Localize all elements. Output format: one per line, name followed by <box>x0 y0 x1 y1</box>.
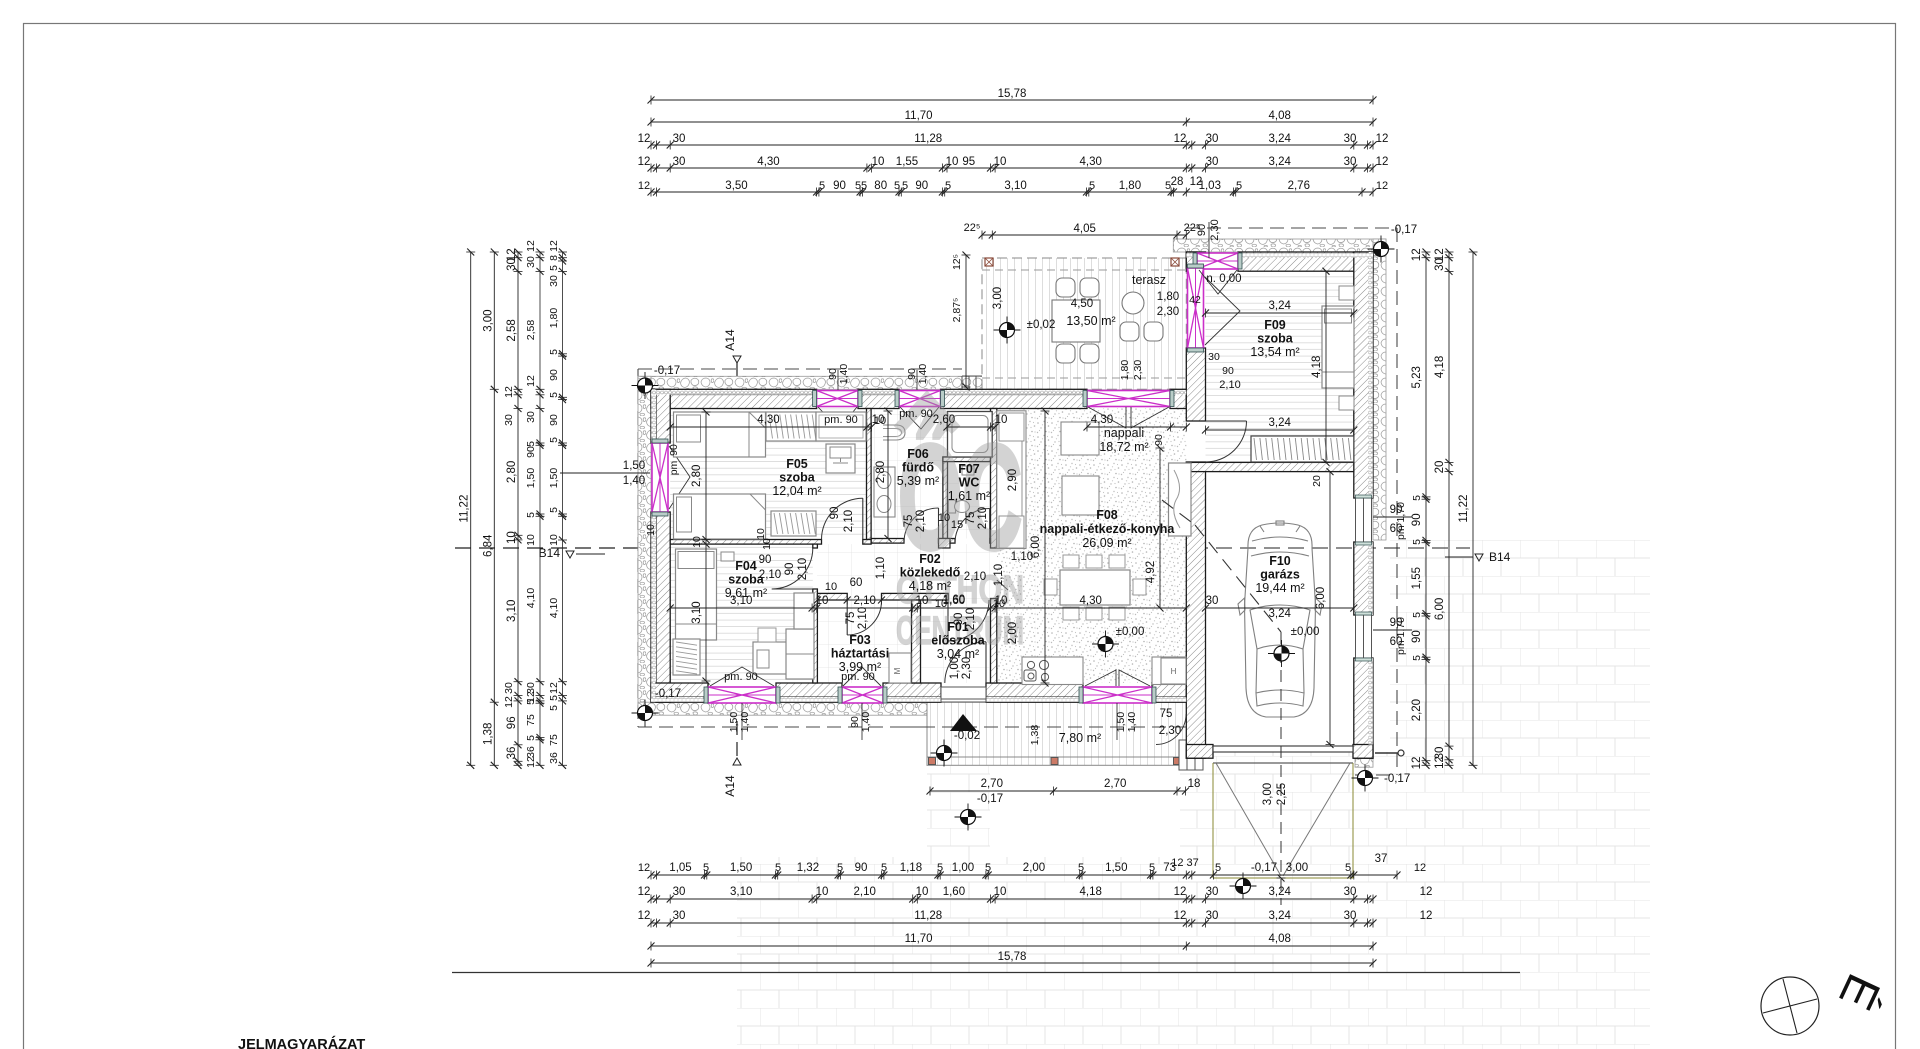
svg-text:2,80: 2,80 <box>506 461 518 483</box>
svg-text:2,70: 2,70 <box>1104 778 1126 790</box>
svg-text:13,54 m²: 13,54 m² <box>1250 345 1299 359</box>
svg-text:30: 30 <box>1344 156 1357 168</box>
svg-text:5: 5 <box>548 392 560 398</box>
svg-text:n. 0,00: n. 0,00 <box>1206 273 1241 285</box>
svg-text:2,00: 2,00 <box>1007 622 1019 644</box>
svg-text:3,24: 3,24 <box>1269 300 1292 312</box>
svg-text:2,87⁵: 2,87⁵ <box>951 298 963 323</box>
svg-text:5: 5 <box>548 265 560 271</box>
svg-text:30: 30 <box>525 411 537 423</box>
svg-text:3,24: 3,24 <box>1269 910 1292 922</box>
svg-text:12: 12 <box>1414 862 1426 874</box>
svg-text:1,00: 1,00 <box>952 862 974 874</box>
svg-text:96: 96 <box>506 716 518 729</box>
svg-text:5: 5 <box>1411 495 1423 501</box>
svg-text:5: 5 <box>945 180 951 192</box>
svg-text:12: 12 <box>1420 886 1433 898</box>
svg-text:F07: F07 <box>958 462 980 476</box>
svg-text:1,50: 1,50 <box>525 468 537 489</box>
svg-text:2,30: 2,30 <box>1132 360 1144 381</box>
svg-text:JELMAGYARÁZAT: JELMAGYARÁZAT <box>238 1036 365 1049</box>
svg-text:3,24: 3,24 <box>1269 156 1292 168</box>
svg-text:28: 28 <box>1171 176 1184 188</box>
svg-text:F10: F10 <box>1269 554 1291 568</box>
svg-text:10: 10 <box>916 886 929 898</box>
svg-text:5: 5 <box>894 180 900 192</box>
svg-text:B14: B14 <box>1489 550 1511 564</box>
svg-text:háztartási: háztartási <box>831 647 889 661</box>
svg-text:A14: A14 <box>723 329 737 351</box>
svg-text:5: 5 <box>1078 862 1084 874</box>
svg-text:5: 5 <box>525 699 537 705</box>
svg-text:10: 10 <box>525 534 537 546</box>
svg-text:-0,17: -0,17 <box>1391 224 1417 236</box>
svg-text:4,08: 4,08 <box>1269 933 1291 945</box>
svg-text:12: 12 <box>525 240 537 252</box>
svg-text:10: 10 <box>916 595 929 607</box>
svg-text:4,18: 4,18 <box>1080 886 1102 898</box>
svg-text:±0,00: ±0,00 <box>1291 626 1320 638</box>
svg-text:12: 12 <box>1174 886 1187 898</box>
svg-text:12 37: 12 37 <box>1171 857 1199 869</box>
svg-text:6,84: 6,84 <box>482 534 494 557</box>
svg-text:10: 10 <box>994 156 1007 168</box>
svg-text:22⁵: 22⁵ <box>964 222 981 234</box>
svg-text:1,03: 1,03 <box>1199 180 1221 192</box>
svg-text:12: 12 <box>1434 756 1446 769</box>
svg-text:11,28: 11,28 <box>914 133 942 145</box>
svg-text:4,18: 4,18 <box>1434 356 1446 378</box>
svg-text:12: 12 <box>1376 133 1389 145</box>
svg-text:5: 5 <box>881 862 887 874</box>
svg-text:1,10: 1,10 <box>1011 551 1033 563</box>
svg-text:F09: F09 <box>1264 318 1286 332</box>
svg-text:5: 5 <box>861 180 867 192</box>
svg-text:75: 75 <box>548 734 560 746</box>
svg-text:4,30: 4,30 <box>1091 414 1113 426</box>
svg-text:4,10: 4,10 <box>525 588 537 609</box>
svg-text:12: 12 <box>1174 910 1187 922</box>
svg-text:-0,17: -0,17 <box>654 365 680 377</box>
svg-text:90: 90 <box>1411 513 1423 526</box>
svg-text:11,28: 11,28 <box>914 910 942 922</box>
svg-text:2,10: 2,10 <box>965 608 977 630</box>
svg-text:3,00: 3,00 <box>992 287 1004 309</box>
svg-text:12: 12 <box>1376 180 1388 192</box>
svg-text:12: 12 <box>638 910 651 922</box>
svg-text:4,18 m²: 4,18 m² <box>909 579 951 593</box>
svg-text:WC: WC <box>959 476 980 490</box>
svg-text:20: 20 <box>1311 475 1323 487</box>
svg-text:4,18: 4,18 <box>1311 356 1323 378</box>
svg-text:2,30: 2,30 <box>961 657 973 679</box>
svg-text:garázs: garázs <box>1260 568 1300 582</box>
svg-text:5: 5 <box>837 862 843 874</box>
svg-text:12: 12 <box>638 886 651 898</box>
svg-text:18,72 m²: 18,72 m² <box>1099 440 1148 454</box>
svg-text:95: 95 <box>962 156 975 168</box>
svg-text:F02: F02 <box>919 552 941 566</box>
svg-text:26,09 m²: 26,09 m² <box>1082 536 1131 550</box>
svg-text:4,10: 4,10 <box>548 598 560 619</box>
svg-text:nappali-étkező-konyha: nappali-étkező-konyha <box>1040 522 1176 536</box>
svg-text:90: 90 <box>784 563 796 576</box>
svg-text:12: 12 <box>638 133 651 145</box>
svg-text:12,04 m²: 12,04 m² <box>772 484 821 498</box>
svg-text:30: 30 <box>1344 886 1357 898</box>
svg-text:10: 10 <box>938 512 950 524</box>
svg-text:5: 5 <box>1411 539 1423 545</box>
svg-text:1,40: 1,40 <box>623 475 645 487</box>
svg-text:5: 5 <box>1215 862 1221 874</box>
svg-text:12: 12 <box>1376 156 1389 168</box>
svg-text:90: 90 <box>548 414 560 426</box>
svg-text:3,00: 3,00 <box>482 309 494 331</box>
svg-text:5: 5 <box>775 862 781 874</box>
svg-text:2,10: 2,10 <box>854 886 876 898</box>
svg-text:75: 75 <box>1160 708 1173 720</box>
svg-text:10: 10 <box>993 598 1005 610</box>
svg-text:F04: F04 <box>735 559 757 573</box>
svg-text:42: 42 <box>1189 294 1201 306</box>
svg-text:5: 5 <box>1149 862 1155 874</box>
svg-text:5: 5 <box>548 437 560 443</box>
svg-text:3,10: 3,10 <box>730 595 752 607</box>
svg-text:-0,17: -0,17 <box>1251 862 1277 874</box>
svg-text:75: 75 <box>525 714 537 726</box>
svg-text:2,10: 2,10 <box>854 595 876 607</box>
svg-text:3,10: 3,10 <box>1004 180 1026 192</box>
svg-text:5: 5 <box>525 735 537 741</box>
svg-text:10: 10 <box>816 886 829 898</box>
svg-text:5,23: 5,23 <box>1411 366 1423 388</box>
svg-text:36: 36 <box>506 747 518 760</box>
svg-text:pm 1,70: pm 1,70 <box>1395 502 1407 540</box>
svg-text:12: 12 <box>503 386 515 398</box>
svg-text:3,50: 3,50 <box>725 180 747 192</box>
svg-text:8: 8 <box>548 255 560 261</box>
svg-text:A14: A14 <box>723 775 737 797</box>
svg-text:1,55: 1,55 <box>1411 567 1423 589</box>
svg-text:5: 5 <box>1165 180 1171 192</box>
svg-text:36: 36 <box>548 752 560 764</box>
svg-text:1,50: 1,50 <box>1105 862 1127 874</box>
svg-text:90: 90 <box>548 369 560 381</box>
svg-text:2,80: 2,80 <box>875 461 887 483</box>
svg-text:12: 12 <box>638 156 651 168</box>
svg-text:-0,17: -0,17 <box>1384 773 1410 785</box>
svg-text:1,40: 1,40 <box>1126 712 1138 733</box>
svg-text:1,80: 1,80 <box>1119 360 1131 381</box>
svg-text:12: 12 <box>525 375 537 387</box>
svg-text:1,80: 1,80 <box>548 308 560 329</box>
svg-text:30: 30 <box>1344 133 1357 145</box>
svg-text:12: 12 <box>548 240 560 252</box>
svg-text:M: M <box>893 667 902 674</box>
svg-text:2,60: 2,60 <box>933 414 955 426</box>
svg-text:30: 30 <box>1206 595 1219 607</box>
svg-text:6,00: 6,00 <box>1434 598 1446 620</box>
svg-text:20: 20 <box>1434 461 1446 474</box>
svg-text:30: 30 <box>1208 351 1220 363</box>
svg-text:-0,02: -0,02 <box>954 730 980 742</box>
svg-text:90: 90 <box>855 862 868 874</box>
svg-text:90: 90 <box>829 507 841 520</box>
svg-text:4,08: 4,08 <box>1269 110 1291 122</box>
svg-text:1,40: 1,40 <box>739 712 751 733</box>
svg-text:pm: pm <box>668 460 680 475</box>
svg-text:2,58: 2,58 <box>506 319 518 341</box>
svg-text:10: 10 <box>946 156 959 168</box>
svg-text:5: 5 <box>1411 655 1423 661</box>
svg-text:1,50: 1,50 <box>623 460 645 472</box>
svg-text:5: 5 <box>1345 862 1351 874</box>
svg-text:4,30: 4,30 <box>757 156 779 168</box>
svg-text:F05: F05 <box>786 457 808 471</box>
svg-text:1,61 m²: 1,61 m² <box>948 489 990 503</box>
svg-text:2,10: 2,10 <box>797 558 809 580</box>
svg-text:nappali: nappali <box>1104 426 1144 440</box>
svg-text:5: 5 <box>937 862 943 874</box>
svg-text:30: 30 <box>1206 910 1219 922</box>
svg-text:37: 37 <box>1375 853 1388 865</box>
svg-text:30: 30 <box>548 275 560 287</box>
svg-text:5: 5 <box>819 180 825 192</box>
svg-text:1,60: 1,60 <box>943 886 965 898</box>
svg-text:1,10: 1,10 <box>993 564 1005 586</box>
svg-text:15: 15 <box>951 519 963 531</box>
svg-text:10: 10 <box>691 536 703 548</box>
svg-text:30: 30 <box>503 682 515 694</box>
svg-text:12: 12 <box>638 180 650 192</box>
svg-text:2,80: 2,80 <box>691 465 703 487</box>
svg-text:2,20: 2,20 <box>1411 699 1423 721</box>
svg-text:1,50: 1,50 <box>730 862 752 874</box>
svg-text:10: 10 <box>825 581 837 593</box>
svg-text:30: 30 <box>673 133 686 145</box>
svg-text:11,22: 11,22 <box>459 495 471 523</box>
svg-text:F03: F03 <box>849 633 871 647</box>
svg-text:4,30: 4,30 <box>1080 156 1102 168</box>
svg-text:4,92: 4,92 <box>1145 561 1157 583</box>
svg-text:90: 90 <box>1411 630 1423 643</box>
svg-text:10: 10 <box>872 156 885 168</box>
svg-text:fürdő: fürdő <box>902 461 934 475</box>
svg-text:3,10: 3,10 <box>506 600 518 622</box>
svg-text:5: 5 <box>902 180 908 192</box>
svg-text:1,00: 1,00 <box>949 657 961 679</box>
svg-text:12: 12 <box>503 696 515 708</box>
svg-text:6,00: 6,00 <box>1315 587 1327 609</box>
svg-text:12: 12 <box>1420 910 1433 922</box>
svg-text:2,30: 2,30 <box>1209 219 1221 240</box>
svg-text:90: 90 <box>668 444 680 456</box>
svg-text:11,22: 11,22 <box>1458 495 1470 523</box>
svg-text:1,05: 1,05 <box>669 862 691 874</box>
svg-text:2,10: 2,10 <box>759 569 781 581</box>
svg-text:2,10: 2,10 <box>977 507 989 529</box>
svg-text:F08: F08 <box>1096 508 1118 522</box>
svg-text:2,25: 2,25 <box>1276 783 1288 805</box>
svg-text:5: 5 <box>548 349 560 355</box>
svg-text:2,10: 2,10 <box>1219 379 1240 391</box>
svg-text:10: 10 <box>994 886 1007 898</box>
svg-text:1,55: 1,55 <box>896 156 918 168</box>
svg-text:1,50: 1,50 <box>548 468 560 489</box>
svg-text:12: 12 <box>1174 133 1187 145</box>
svg-text:30: 30 <box>1206 133 1219 145</box>
svg-text:13,50 m²: 13,50 m² <box>1066 314 1115 328</box>
svg-text:pm. 90: pm. 90 <box>824 414 858 426</box>
svg-text:közlekedő: közlekedő <box>900 566 961 580</box>
svg-text:30: 30 <box>1434 258 1446 271</box>
svg-text:75: 75 <box>965 512 977 525</box>
svg-text:-0,17: -0,17 <box>977 793 1003 805</box>
svg-text:1,40: 1,40 <box>917 364 929 385</box>
svg-text:30: 30 <box>673 886 686 898</box>
svg-text:7,80 m²: 7,80 m² <box>1059 731 1101 745</box>
svg-text:3,00: 3,00 <box>1286 862 1308 874</box>
svg-text:90: 90 <box>833 180 846 192</box>
svg-text:5: 5 <box>1411 612 1423 618</box>
svg-text:30: 30 <box>1206 886 1219 898</box>
svg-text:1,80: 1,80 <box>1157 291 1179 303</box>
svg-text:10: 10 <box>645 524 657 536</box>
svg-text:szoba: szoba <box>779 471 815 485</box>
svg-text:-0,17: -0,17 <box>655 688 681 700</box>
svg-text:1,38: 1,38 <box>482 723 494 745</box>
svg-text:11,70: 11,70 <box>905 110 933 122</box>
svg-text:pm. 90: pm. 90 <box>724 671 758 683</box>
svg-text:előszoba: előszoba <box>931 634 986 648</box>
svg-text:30: 30 <box>506 258 518 271</box>
svg-text:90: 90 <box>953 613 965 626</box>
svg-text:30: 30 <box>673 910 686 922</box>
svg-text:2,30: 2,30 <box>1157 306 1179 318</box>
svg-text:5: 5 <box>548 705 560 711</box>
svg-text:10: 10 <box>995 414 1008 426</box>
svg-text:3,24: 3,24 <box>1269 608 1292 620</box>
svg-text:60: 60 <box>850 577 863 589</box>
svg-text:90: 90 <box>915 180 928 192</box>
svg-text:3,24: 3,24 <box>1269 886 1292 898</box>
svg-text:1,38: 1,38 <box>1029 725 1041 746</box>
svg-text:3,24: 3,24 <box>1269 417 1292 429</box>
svg-text:2,10: 2,10 <box>843 510 855 532</box>
svg-text:10: 10 <box>506 531 518 544</box>
svg-text:90: 90 <box>759 554 772 566</box>
svg-text:15,78: 15,78 <box>998 88 1027 100</box>
svg-text:5: 5 <box>525 512 537 518</box>
svg-text:3,10: 3,10 <box>730 886 752 898</box>
svg-text:3,10: 3,10 <box>691 601 703 623</box>
svg-text:2,00: 2,00 <box>1023 862 1045 874</box>
svg-text:10: 10 <box>874 415 886 427</box>
svg-text:11,70: 11,70 <box>905 933 933 945</box>
svg-text:36: 36 <box>525 746 537 758</box>
svg-text:5: 5 <box>985 862 991 874</box>
svg-text:1,18: 1,18 <box>900 862 922 874</box>
svg-text:18: 18 <box>1188 778 1201 790</box>
svg-text:2,10: 2,10 <box>964 571 986 583</box>
svg-text:90: 90 <box>1222 365 1234 377</box>
svg-text:5: 5 <box>1236 180 1242 192</box>
svg-text:terasz: terasz <box>1132 273 1166 287</box>
svg-text:5,39 m²: 5,39 m² <box>897 474 939 488</box>
svg-text:1,10: 1,10 <box>875 557 887 579</box>
svg-text:19,44 m²: 19,44 m² <box>1255 581 1304 595</box>
svg-text:12: 12 <box>548 682 560 694</box>
svg-text:75: 75 <box>845 612 857 625</box>
svg-text:80: 80 <box>874 180 887 192</box>
svg-text:pm 1,70: pm 1,70 <box>1395 617 1407 655</box>
svg-text:30: 30 <box>1344 910 1357 922</box>
svg-text:12: 12 <box>638 862 650 874</box>
svg-text:1,80: 1,80 <box>1119 180 1141 192</box>
svg-text:3,00: 3,00 <box>1262 783 1274 805</box>
svg-text:pm. 90: pm. 90 <box>841 671 875 683</box>
svg-text:30: 30 <box>1206 156 1219 168</box>
svg-text:5: 5 <box>548 695 560 701</box>
svg-text:3,24: 3,24 <box>1269 133 1292 145</box>
svg-text:2,76: 2,76 <box>1288 180 1310 192</box>
svg-text:2,70: 2,70 <box>981 778 1003 790</box>
svg-text:12: 12 <box>1411 248 1423 261</box>
svg-text:2,90: 2,90 <box>1007 469 1019 491</box>
svg-text:±0,00: ±0,00 <box>1116 626 1145 638</box>
svg-text:5: 5 <box>703 862 709 874</box>
svg-text:75: 75 <box>903 515 915 528</box>
svg-text:2,10: 2,10 <box>857 607 869 629</box>
svg-text:2,58: 2,58 <box>525 320 537 341</box>
svg-text:H: H <box>1171 667 1177 676</box>
svg-text:90: 90 <box>1196 224 1208 236</box>
svg-text:1,40: 1,40 <box>838 364 850 385</box>
svg-text:2,10: 2,10 <box>915 510 927 532</box>
svg-text:90: 90 <box>1153 434 1165 446</box>
svg-text:10: 10 <box>548 534 560 546</box>
svg-text:30: 30 <box>673 156 686 168</box>
svg-text:szoba: szoba <box>1257 332 1293 346</box>
svg-text:5: 5 <box>1089 180 1095 192</box>
svg-text:4,05: 4,05 <box>1074 223 1096 235</box>
svg-text:10: 10 <box>755 528 767 540</box>
svg-text:4,50: 4,50 <box>1071 298 1093 310</box>
svg-text:B14: B14 <box>539 546 561 560</box>
svg-text:30: 30 <box>525 256 537 268</box>
svg-text:12⁵: 12⁵ <box>951 254 963 270</box>
svg-text:12: 12 <box>1411 757 1423 770</box>
svg-text:30: 30 <box>503 414 515 426</box>
svg-text:5: 5 <box>548 507 560 513</box>
svg-text:F06: F06 <box>907 447 929 461</box>
svg-text:4,30: 4,30 <box>757 414 779 426</box>
svg-text:4,30: 4,30 <box>1080 595 1102 607</box>
svg-text:pm. 90: pm. 90 <box>899 408 933 420</box>
svg-text:12: 12 <box>525 756 537 768</box>
svg-text:1,32: 1,32 <box>797 862 819 874</box>
svg-text:5: 5 <box>525 441 537 447</box>
svg-text:±0,02: ±0,02 <box>1027 319 1056 331</box>
svg-text:10: 10 <box>935 598 947 610</box>
svg-text:15,78: 15,78 <box>998 951 1027 963</box>
